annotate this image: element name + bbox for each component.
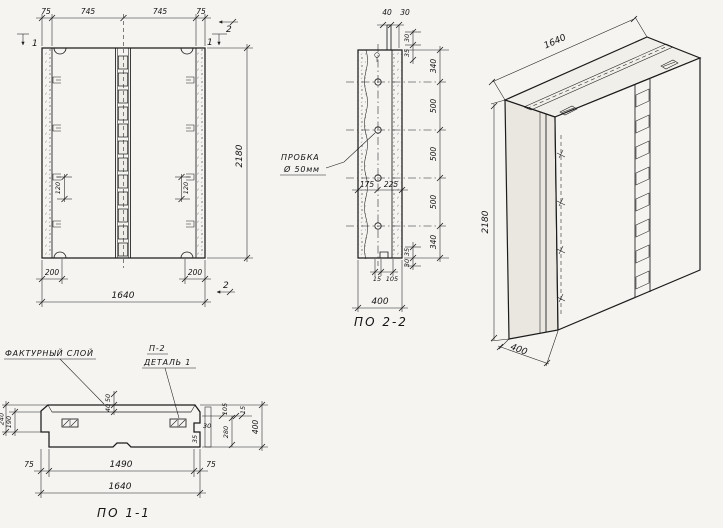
dim-75-bl: 75 (24, 460, 34, 469)
section-1-1: ФАКТУРНЫЙ СЛОЙ П-2 ДЕТАЛЬ 1 50 40 190 24… (0, 344, 268, 520)
dim-105: 105 (221, 403, 229, 415)
detail-leader (165, 368, 179, 418)
caption-section-1-1: ПО 1-1 (97, 506, 151, 520)
dim-120-right: 120 (182, 182, 190, 194)
dim-500-3: 500 (429, 195, 438, 210)
dim-off35-top: 35 (403, 49, 411, 57)
hook-top-right (181, 48, 193, 54)
dim-30: 30 (400, 8, 410, 17)
s11-body (41, 405, 200, 447)
facture-layer (48, 405, 195, 412)
dim-15: 15 (239, 406, 247, 414)
dim-200-left: 200 (45, 268, 60, 277)
hook-bottom-left (54, 252, 66, 258)
dim-745-left: 745 (81, 7, 96, 16)
dim-500-2: 500 (429, 147, 438, 162)
dim-240: 240 (0, 413, 6, 425)
dim-190: 190 (5, 416, 13, 428)
section-2-2: 340 500 500 500 340 40 30 30 35 35 30 17… (280, 8, 449, 329)
dim-340-bottom: 340 (429, 235, 438, 250)
dim-1640-front: 1640 (112, 291, 135, 301)
dim-340-top: 340 (429, 59, 438, 74)
dim-30-step: 30 (203, 422, 211, 430)
caption-section-2-2: ПО 2-2 (354, 315, 408, 329)
dim-2180: 2180 (235, 144, 245, 167)
ladder-rungs (118, 56, 127, 256)
detail-ref: П-2 (149, 344, 165, 353)
cut-mark-1-tr: 1 (207, 38, 213, 48)
dim-105: 105 (386, 275, 398, 283)
top-loop-bar (387, 25, 391, 50)
dim-500-1: 500 (429, 99, 438, 114)
cut-mark-2-br: 2 (223, 281, 229, 291)
iso-dim-2180: 2180 (481, 210, 491, 233)
isometric-view: 1640 2180 400 (481, 16, 700, 366)
iso-dim-400: 400 (509, 342, 529, 357)
dim-1490: 1490 (110, 460, 133, 470)
dim-40: 40 (382, 8, 392, 17)
dim-200-right: 200 (188, 268, 203, 277)
loop-anchor-icon (375, 53, 380, 58)
dim-400-s11: 400 (251, 420, 260, 435)
plug-label-line2: Ø 50мм (283, 164, 320, 174)
dim-400-s22: 400 (371, 297, 388, 307)
dim-75-right: 75 (196, 7, 206, 16)
s22-chain (404, 46, 449, 262)
iso-left-face (505, 100, 558, 339)
plug-label-line1: ПРОБКА (281, 153, 320, 162)
panel-drawing: 75 745 745 75 2180 120 120 200 200 1640 (0, 0, 723, 528)
dim-35-step: 35 (191, 435, 199, 443)
hook-bottom-right (181, 252, 193, 258)
iso-dim-1640: 1640 (543, 33, 568, 52)
dim-off35-bottom: 35 (403, 248, 411, 256)
dim-225: 225 (384, 180, 399, 189)
dim-175: 175 (360, 180, 375, 189)
dim-15: 15 (373, 275, 381, 283)
facture-leader (60, 359, 104, 404)
cut-mark-2-tr: 2 (226, 25, 232, 35)
bottom-notch (380, 252, 388, 258)
detail-label: ДЕТАЛЬ 1 (143, 358, 191, 367)
hook-top-left (54, 48, 66, 54)
plug-leader (326, 133, 375, 168)
dim-75-br: 75 (206, 460, 216, 469)
dim-50-layer: 50 (104, 394, 112, 402)
dim-745-right: 745 (153, 7, 168, 16)
dim-off30-top: 30 (403, 34, 411, 42)
dim-off30-bottom: 30 (403, 259, 411, 267)
dim-1640-s11: 1640 (109, 482, 132, 492)
front-height-dim (207, 44, 253, 262)
facture-label: ФАКТУРНЫЙ СЛОЙ (5, 347, 94, 358)
front-view: 75 745 745 75 2180 120 120 200 200 1640 (17, 7, 253, 307)
cut-mark-1-tl: 1 (32, 39, 38, 49)
dim-40-layer: 40 (104, 404, 112, 412)
dim-280: 280 (222, 426, 230, 438)
dim-75-left: 75 (41, 7, 51, 16)
drawing-sheet: 75 745 745 75 2180 120 120 200 200 1640 (0, 0, 723, 528)
dim-120-left: 120 (54, 182, 62, 194)
s11-anchors (62, 419, 186, 427)
